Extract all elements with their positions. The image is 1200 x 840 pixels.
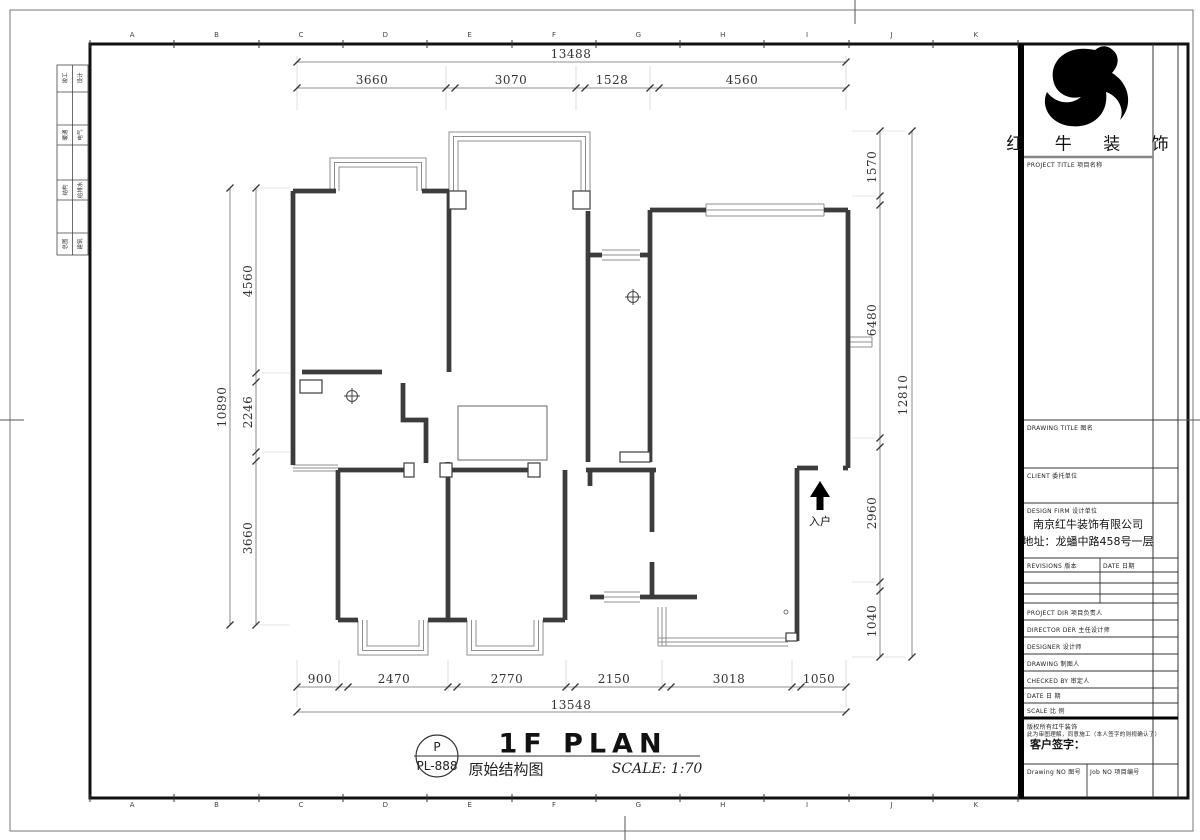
client-label: CLIENT 委托单位 (1027, 471, 1077, 480)
dim-left-seg: 4560 (241, 265, 255, 298)
dim-top-seg: 1528 (596, 73, 629, 87)
drawing-scale: SCALE: 1:70 (612, 761, 703, 777)
ruler-letter: G (596, 801, 680, 809)
staff-row: DESIGNER 设计师 (1027, 642, 1082, 651)
brand-name: 红 牛 装 饰 (1006, 130, 1181, 155)
staff-row: DRAWING 制图人 (1027, 659, 1079, 668)
staff-row: DATE 日 期 (1027, 691, 1061, 700)
drawing-title-en: 1F PLAN (498, 729, 667, 760)
ruler-letter: B (174, 31, 258, 39)
built-in-shelf (458, 406, 547, 460)
design-firm-label: DESIGN FIRM 设计单位 (1027, 506, 1097, 515)
ruler-letter: D (343, 31, 427, 39)
staff-row: DIRECTOR DER 主任设计师 (1027, 625, 1110, 634)
discipline-cell: 结构 (61, 184, 69, 195)
project-title-label: PROJECT TITLE 项目名称 (1027, 160, 1102, 169)
dim-right-seg: 2960 (865, 497, 879, 530)
sheet-code-number: PL-888 (417, 759, 458, 773)
entrance-label: 入户 (809, 513, 831, 529)
dim-bottom-seg: 1050 (803, 672, 836, 686)
drawing-no-label: Drawing NO 图号 (1027, 767, 1081, 776)
dim-bottom-seg: 2770 (491, 672, 524, 686)
discipline-cell: 电气 (76, 129, 84, 140)
ruler-letter: B (174, 801, 258, 809)
ruler-letter: F (512, 801, 596, 809)
ruler-letter: H (681, 801, 765, 809)
ruler-letter: F (512, 31, 596, 39)
ruler-letter: J (849, 31, 933, 39)
ruler-letter: C (259, 31, 343, 39)
extension-lines (250, 56, 906, 707)
ruler-letter: E (427, 801, 511, 809)
dim-left-total: 10890 (215, 387, 229, 428)
dim-top-seg: 3660 (356, 73, 389, 87)
entrance-arrow (810, 481, 830, 510)
ruler-letter: J (849, 801, 933, 809)
discipline-cell: 竣工 (61, 72, 69, 83)
dim-right-seg: 6480 (865, 304, 879, 337)
windows (293, 132, 872, 655)
walls (293, 191, 848, 641)
dim-right-total: 12810 (896, 375, 910, 416)
dim-bottom-seg: 2470 (378, 672, 411, 686)
dim-left-seg: 2246 (241, 396, 255, 429)
redniu-logo (1045, 46, 1128, 126)
discipline-cell: 建筑 (76, 238, 84, 249)
survey-symbols (344, 289, 641, 404)
door-pivot-mark (784, 610, 788, 614)
ruler-letter: D (343, 801, 427, 809)
dimension-ticks (227, 59, 916, 716)
dim-right-seg: 1570 (865, 151, 879, 184)
discipline-cell: 给排水 (76, 182, 84, 199)
dim-top-seg: 4560 (726, 73, 759, 87)
staff-row: PROJECT DIR 项目负责人 (1027, 608, 1102, 617)
dim-top-seg: 3070 (495, 73, 528, 87)
ruler-letter: I (765, 801, 849, 809)
sheet-linework (0, 0, 1200, 840)
signature-label: 客户签字： (1030, 736, 1085, 752)
ruler-letter: K (934, 31, 1018, 39)
ruler-letter: K (934, 801, 1018, 809)
dim-bottom-seg: 3018 (713, 672, 746, 686)
staff-row: CHECKED BY 审定人 (1027, 676, 1090, 685)
frame-ruler-top: ABCDEFGHIJK (90, 31, 1018, 39)
wall-pillars (300, 191, 797, 641)
drawing-title-label: DRAWING TITLE 图名 (1027, 423, 1093, 432)
ruler-letter: E (427, 31, 511, 39)
sheet-code-letter: P (433, 740, 440, 754)
drawing-title-cn: 原始结构图 (468, 759, 543, 780)
dim-left-seg: 3660 (241, 522, 255, 555)
dim-bottom-seg: 2150 (598, 672, 631, 686)
dim-top-total: 13488 (551, 47, 592, 61)
ruler-letter: I (765, 31, 849, 39)
ruler-letter: A (90, 801, 174, 809)
frame-ruler-bottom: ABCDEFGHIJK (90, 801, 1018, 809)
page-borders (0, 0, 1200, 840)
ruler-letter: A (90, 31, 174, 39)
ruler-letter: H (681, 31, 765, 39)
staff-row: SCALE 比 例 (1027, 706, 1065, 715)
date-col-label: DATE 日期 (1103, 561, 1135, 570)
dimension-lines (230, 62, 912, 712)
ruler-letter: G (596, 31, 680, 39)
firm-name: 南京红牛装饰有限公司 (1033, 516, 1143, 532)
ruler-letter: C (259, 801, 343, 809)
drawing-sheet: ABCDEFGHIJK ABCDEFGHIJK 竣工 设计 暖通 电气 结构 给… (0, 0, 1200, 840)
discipline-cell: 设计 (76, 72, 84, 83)
left-discipline-table (57, 65, 88, 255)
discipline-cell: 暖通 (61, 129, 69, 140)
revisions-label: REVISIONS 版本 (1027, 561, 1077, 570)
dim-bottom-total: 13548 (551, 698, 592, 712)
discipline-cell: 总图 (61, 238, 69, 249)
dim-bottom-seg: 900 (308, 672, 332, 686)
job-no-label: Job NO 项目编号 (1090, 767, 1140, 776)
dim-right-seg: 1040 (865, 605, 879, 638)
firm-address: 地址：龙蟠中路458号一层 (1023, 533, 1154, 549)
